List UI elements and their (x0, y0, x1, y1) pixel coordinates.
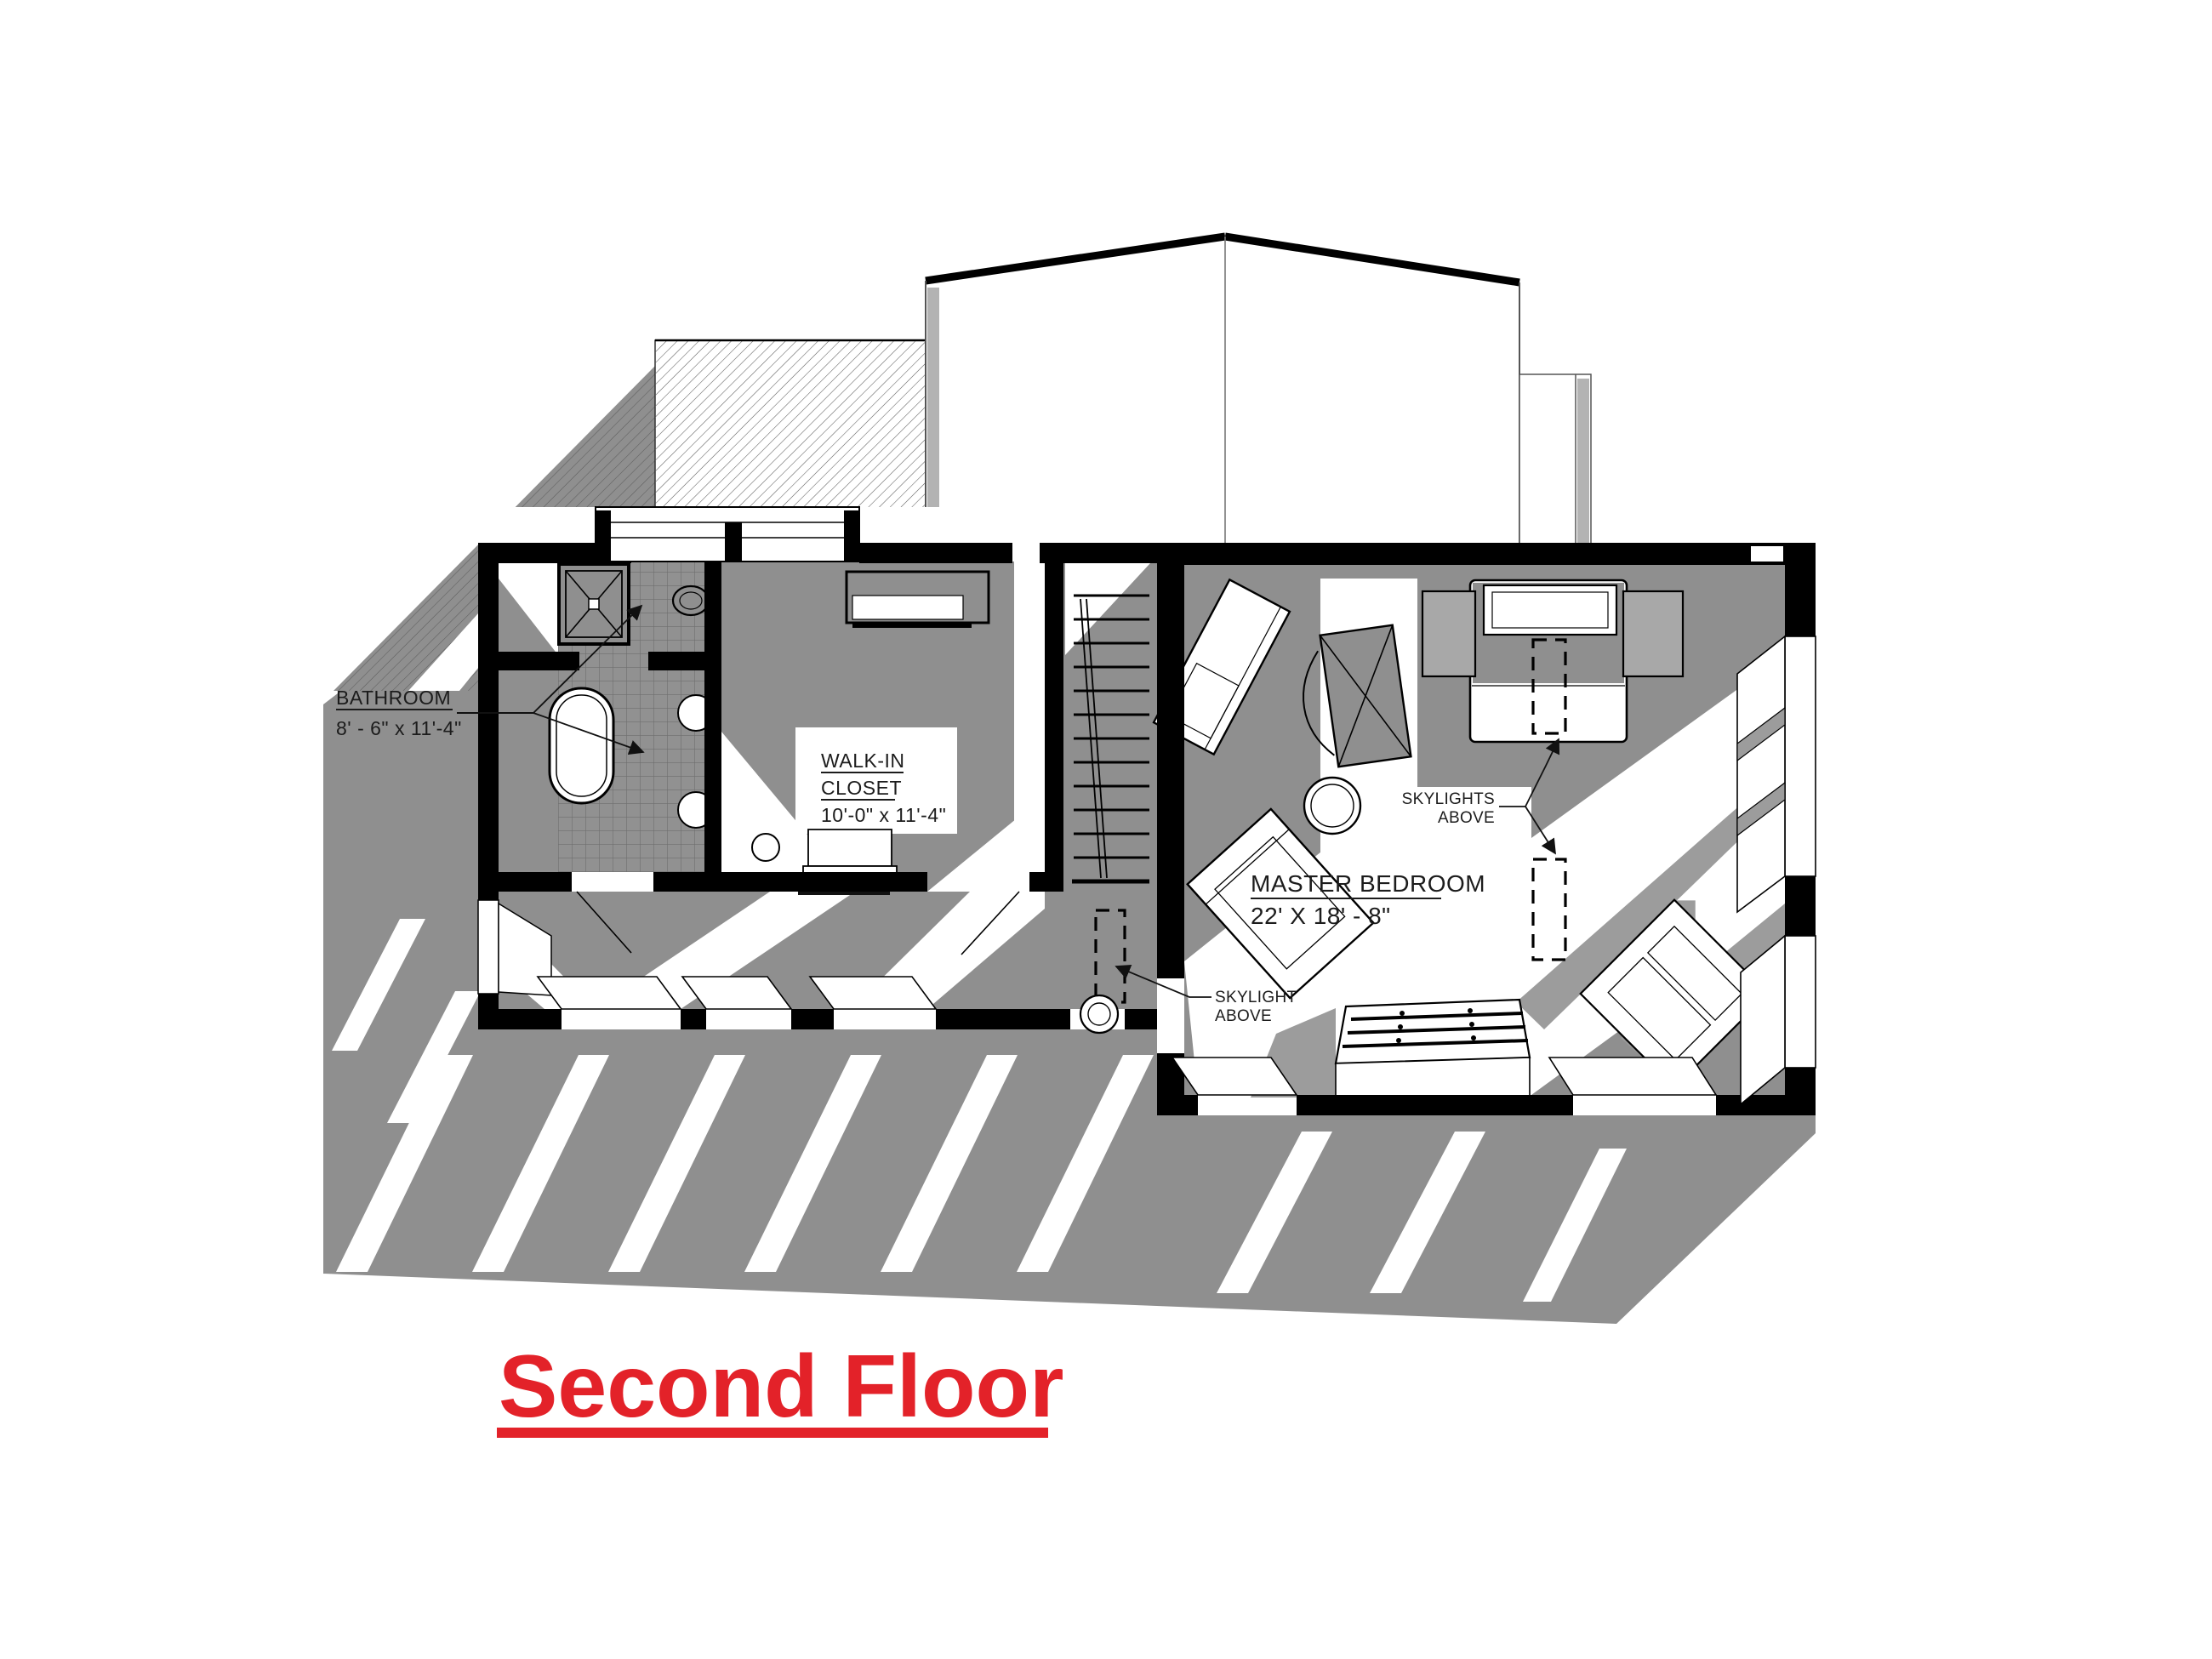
master-bedroom-name: MASTER BEDROOM (1251, 870, 1485, 897)
second-floor-title: Second Floor (497, 1337, 1063, 1438)
skylight-above-line1: SKYLIGHT (1215, 989, 1297, 1006)
toilet (673, 586, 709, 615)
closet-stool (752, 834, 779, 861)
master-bedroom-dims: 22' X 18' - 8" (1251, 903, 1391, 929)
closet-name-line1: WALK-IN (821, 750, 905, 772)
closet-dims: 10'-0" x 11'-4" (821, 804, 946, 826)
shower (559, 564, 629, 644)
skylights-above-line2: ABOVE (1438, 809, 1495, 827)
closet-name-line2: CLOSET (821, 777, 902, 799)
floor-plan-drawing: BATHROOM 8' - 6" x 11'-4" WALK-IN CLOSET… (0, 0, 2212, 1659)
ceiling-light (1080, 995, 1118, 1033)
hall-south-windows (538, 977, 936, 1009)
roof-gable (926, 237, 1591, 544)
master-bedroom (1154, 543, 1816, 1115)
nightstand-left (1422, 591, 1475, 676)
bath-north-window (596, 507, 859, 562)
second-floor-title-text: Second Floor (499, 1337, 1063, 1436)
title-underline (497, 1428, 1048, 1438)
bathtub (550, 688, 613, 803)
nightstand-right (1623, 591, 1683, 676)
bathroom-dims: 8' - 6" x 11'-4" (336, 717, 462, 739)
skylight-above-line2: ABOVE (1215, 1007, 1272, 1025)
skylights-above-line1: SKYLIGHTS (1402, 790, 1495, 808)
bathroom-name: BATHROOM (336, 687, 451, 709)
round-table (1304, 778, 1360, 834)
floor-plan-page: BATHROOM 8' - 6" x 11'-4" WALK-IN CLOSET… (0, 0, 2212, 1659)
bed (1470, 580, 1627, 742)
closet-shelf (847, 572, 989, 628)
east-windows (1737, 636, 1816, 1104)
